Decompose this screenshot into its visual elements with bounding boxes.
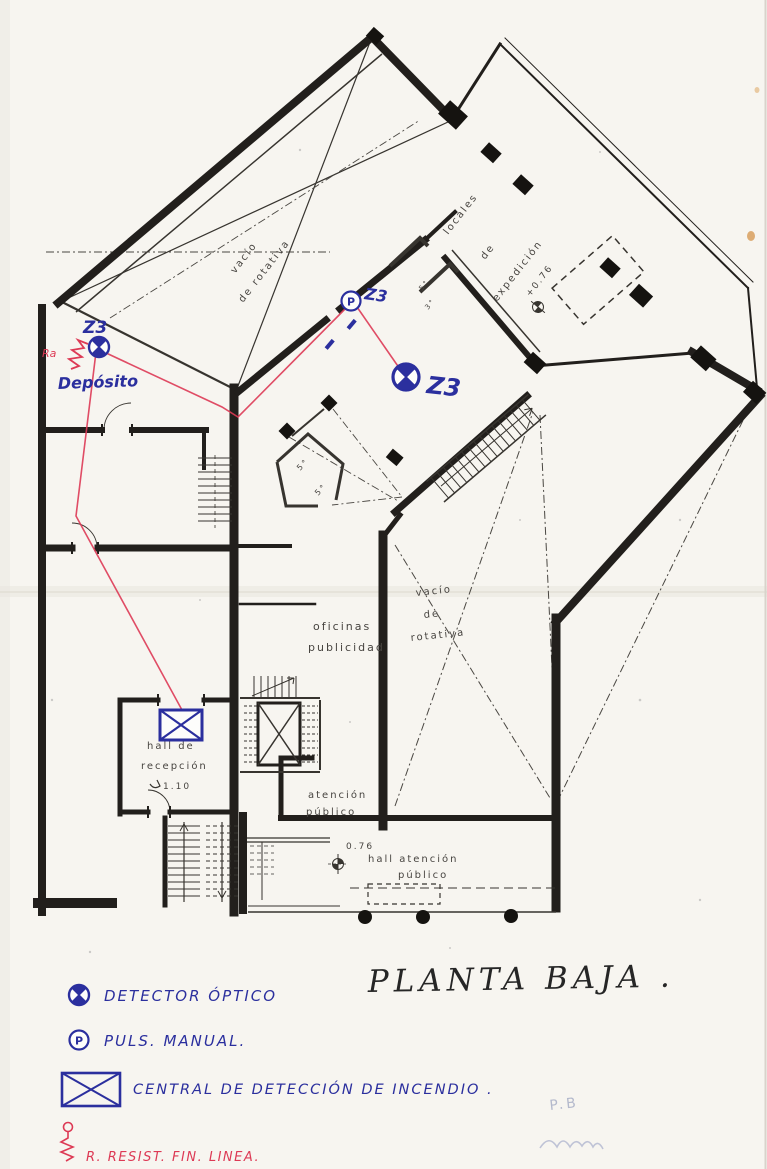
pencil-note: P.B bbox=[549, 1095, 580, 1114]
room-label-oficinas-1: oficinas bbox=[313, 620, 371, 633]
room-label-hall-recepcion-1: hall de bbox=[147, 741, 195, 752]
resistor-tag-label: Ra bbox=[42, 347, 57, 360]
level-label-hall-atencion: 0.76 bbox=[346, 842, 374, 852]
manual-pull-station-symbol: P bbox=[342, 292, 361, 311]
room-label-atencion-2: público bbox=[306, 806, 356, 818]
zone-label-1: Z3 bbox=[82, 318, 107, 338]
optical-detector-symbol-1 bbox=[89, 337, 109, 357]
room-label-oficinas-2: publicidad bbox=[308, 641, 385, 654]
room-label-hall-atencion-1: hall atención bbox=[368, 853, 458, 865]
legend-central-label: CENTRAL DE DETECCIÓN DE INCENDIO . bbox=[133, 1080, 494, 1098]
legend-detector-label: DETECTOR ÓPTICO bbox=[104, 986, 277, 1005]
floor-plan-drawing: vacío de rotativa locales de expedición … bbox=[0, 0, 767, 1169]
room-label-atencion-1: atención bbox=[308, 789, 367, 801]
legend-detector-icon bbox=[69, 985, 89, 1005]
level-label-recepcion: 1.10 bbox=[163, 782, 191, 792]
room-label-hall-atencion-2: público bbox=[398, 869, 448, 881]
legend-pulsador-icon: P bbox=[70, 1031, 89, 1050]
page-title: PLANTA BAJA . bbox=[367, 959, 675, 1000]
room-label-hall-recepcion-2: recepción bbox=[141, 760, 208, 772]
ink-stain-small bbox=[755, 87, 760, 93]
deposito-label: Depósito bbox=[57, 371, 138, 393]
scanned-page: vacío de rotativa locales de expedición … bbox=[0, 0, 767, 1169]
svg-text:P: P bbox=[347, 296, 355, 309]
svg-text:P: P bbox=[75, 1035, 83, 1048]
zone-label-2: Z3 bbox=[362, 284, 388, 306]
legend-pulsador-label: PULS. MANUAL. bbox=[104, 1032, 246, 1050]
optical-detector-symbol-2 bbox=[393, 364, 419, 390]
fire-panel-symbol bbox=[160, 710, 202, 740]
ink-stain bbox=[747, 231, 755, 241]
zone-label-3: Z3 bbox=[424, 371, 462, 403]
room-label-vacio-right-2: de bbox=[423, 608, 441, 621]
legend-resistor-label: R. RESIST. FIN. LINEA. bbox=[86, 1150, 260, 1165]
